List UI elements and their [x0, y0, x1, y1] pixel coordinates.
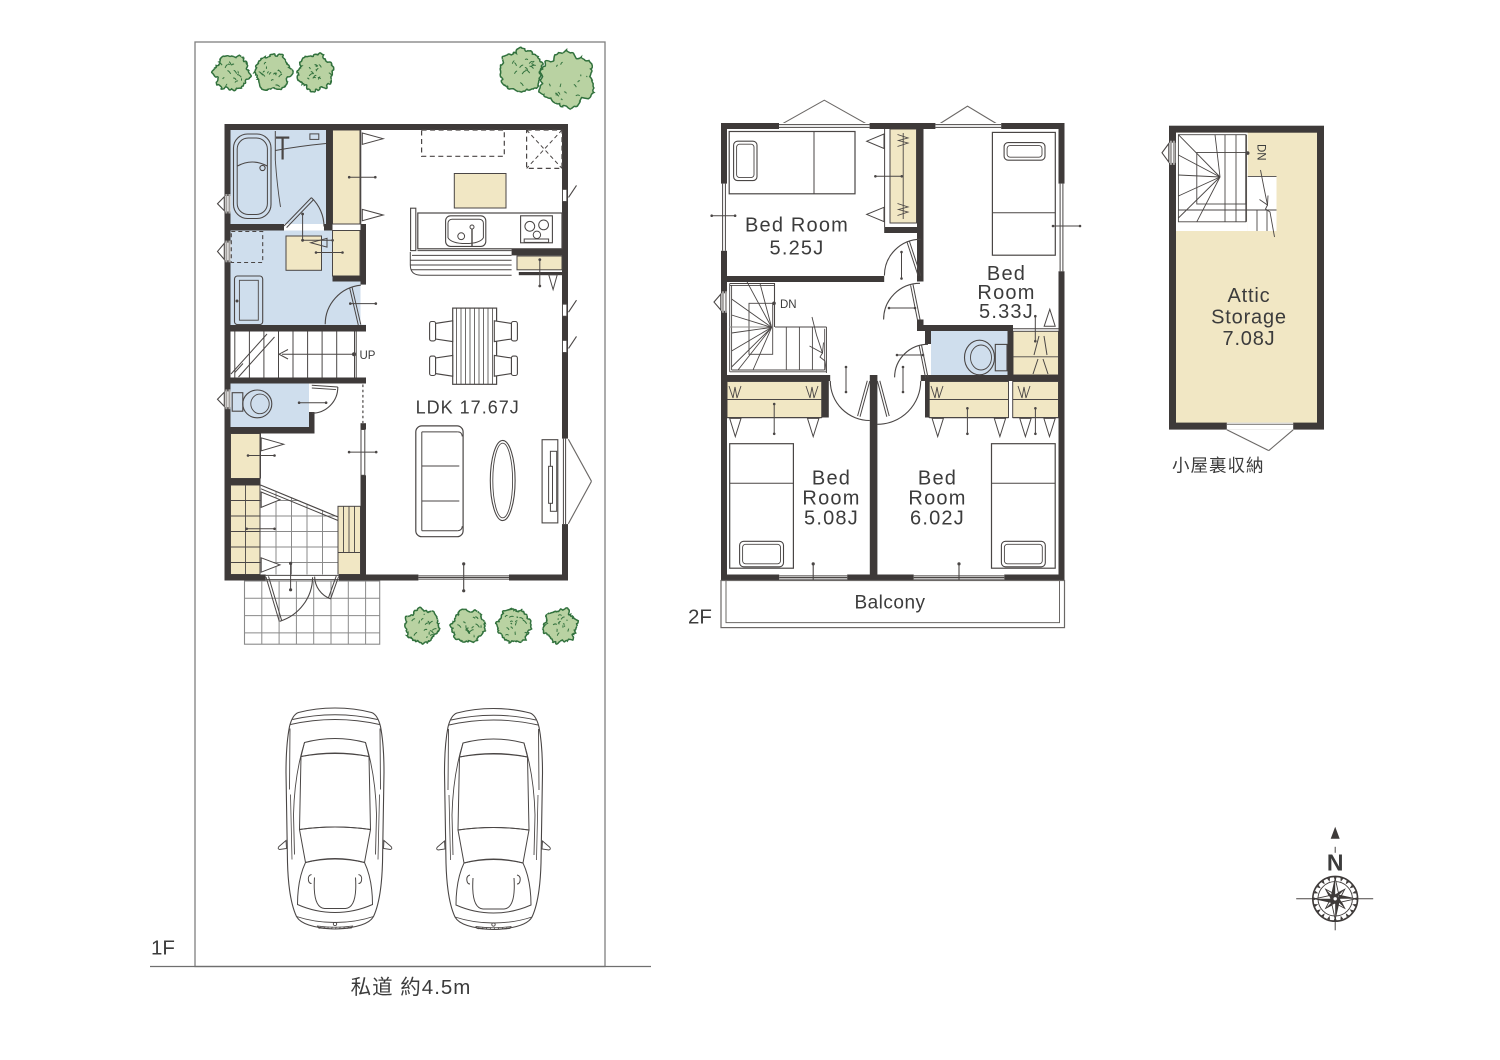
svg-text:LDK 17.67J: LDK 17.67J	[416, 398, 520, 418]
svg-text:5.08J: 5.08J	[804, 508, 859, 530]
svg-text:小屋裏収納: 小屋裏収納	[1172, 456, 1265, 476]
svg-text:私道 約4.5m: 私道 約4.5m	[351, 976, 472, 999]
svg-text:Attic: Attic	[1228, 285, 1271, 307]
svg-text:Room: Room	[802, 488, 860, 510]
svg-text:Balcony: Balcony	[854, 593, 925, 614]
svg-text:5.25J: 5.25J	[770, 238, 825, 260]
svg-text:1F: 1F	[151, 937, 175, 960]
svg-text:5.33J: 5.33J	[979, 301, 1034, 323]
svg-text:7.08J: 7.08J	[1223, 328, 1276, 350]
svg-text:Bed: Bed	[812, 468, 851, 490]
svg-text:DN: DN	[780, 299, 797, 311]
svg-text:DN: DN	[1255, 144, 1267, 161]
svg-text:2F: 2F	[688, 606, 712, 629]
svg-text:Bed Room: Bed Room	[745, 215, 849, 237]
svg-text:Room: Room	[908, 488, 966, 510]
svg-text:Bed: Bed	[918, 468, 957, 490]
svg-text:UP: UP	[360, 350, 376, 362]
svg-text:6.02J: 6.02J	[910, 508, 965, 530]
svg-text:Storage: Storage	[1211, 307, 1287, 329]
svg-text:N: N	[1327, 849, 1344, 875]
